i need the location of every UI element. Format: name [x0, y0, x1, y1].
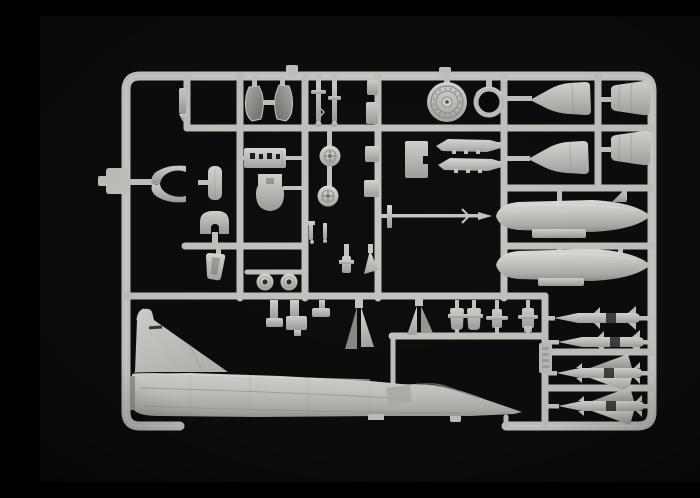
photo-vignette [40, 16, 700, 482]
model-kit-sprue-photo [40, 16, 700, 482]
sprue-photo-svg [40, 16, 700, 482]
